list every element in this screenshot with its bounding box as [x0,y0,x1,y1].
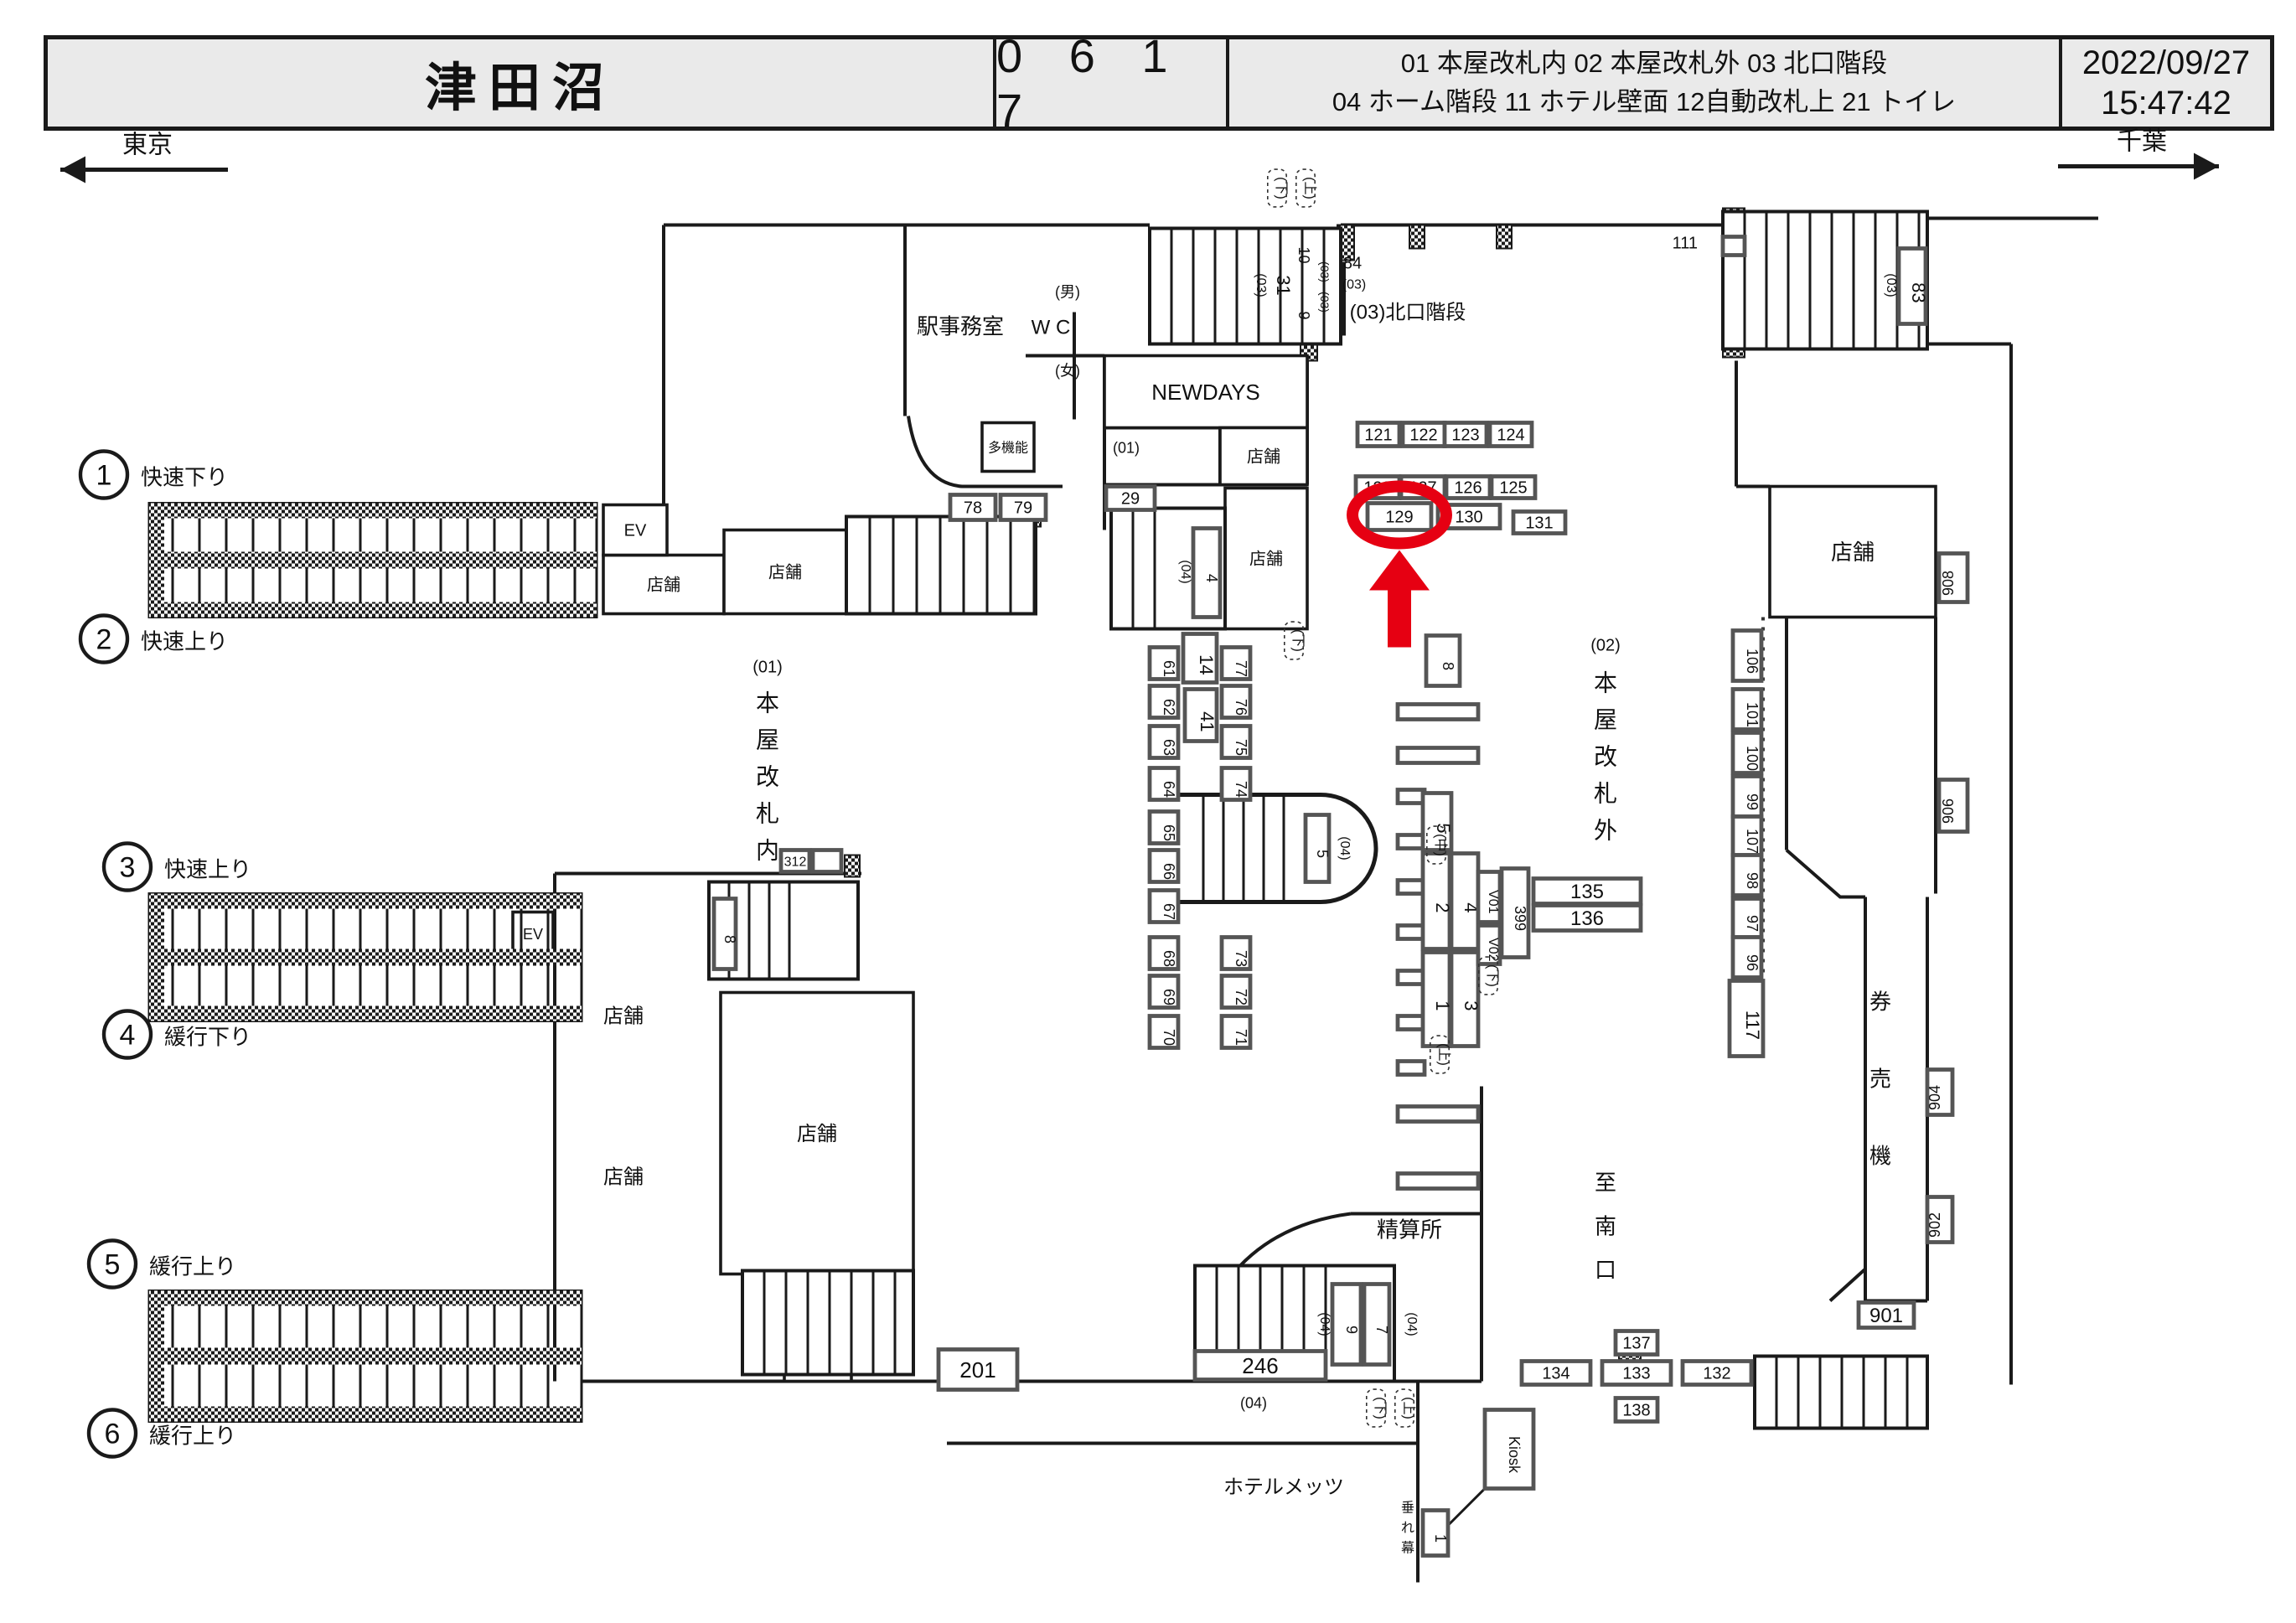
shop-center: 店舗 [721,993,913,1274]
shop-by-stairs04: 店舗 [1225,488,1307,629]
ad-box-126: 126 [1446,477,1490,499]
text-券売機: 券売機 [1869,990,1891,1169]
ad-box-5: 5 [1306,815,1331,882]
ad-box-label-66: 66 [1161,863,1177,880]
text-(04): (04) [1178,560,1192,583]
ad-box-201: 201 [939,1350,1017,1390]
wall-path [1787,850,1865,897]
ad-box-399: 399 [1502,869,1528,958]
ad-box-71: 71 [1222,1016,1250,1048]
ad-box-121: 121 [1357,423,1399,447]
text-(03): (03) [1318,261,1332,282]
platform-name-6: 緩行上り [149,1424,236,1449]
text-(03): (03) [1884,273,1898,297]
multifunction-toilet-label: 多機能 [988,440,1028,455]
ad-box-98: 98 [1733,855,1761,896]
ad-box-label-246: 246 [1242,1353,1278,1378]
ad-box-label-132: 132 [1703,1365,1730,1383]
ad-box-label-130: 130 [1455,509,1482,527]
ad-box-label-74: 74 [1233,781,1249,798]
text-駅事務室: 駅事務室 [917,314,1004,339]
ad-box-label-62: 62 [1161,699,1177,716]
ad-box-label-106: 106 [1744,649,1761,674]
ad-box-label-1: 1 [1432,1534,1449,1543]
platform-number-4: 4 [120,1020,136,1052]
text-W C: W C [1032,317,1071,339]
platform-number-1: 1 [96,460,112,492]
text-9: 9 [1295,311,1312,319]
ad-box-label-3: 3 [1461,1000,1482,1010]
elevator-1: EV [603,505,667,556]
staircase [1203,795,1284,902]
ad-box-65: 65 [1150,812,1178,844]
ad-box-label-78: 78 [964,499,982,518]
ad-box-label-73: 73 [1233,950,1249,967]
ad-box-123: 123 [1445,423,1487,447]
text-(男): (男) [1055,284,1080,301]
ad-box-label-68: 68 [1161,950,1177,967]
text-(04): (04) [1337,836,1352,860]
ad-box-V01: V01 [1478,872,1500,923]
ad-box-label-98: 98 [1744,872,1761,889]
hatched-pillar [1409,225,1425,249]
ad-box-label-9: 9 [1343,1326,1360,1334]
highlight-arrow-129 [1369,550,1430,648]
shop-under-newdays-label: 店舗 [1247,447,1280,467]
ad-box-label-65: 65 [1161,824,1177,841]
elevator-1-label: EV [624,522,647,540]
ad-box-64: 64 [1150,768,1178,800]
text-(04): (04) [1240,1395,1267,1412]
text-10: 10 [1295,246,1312,263]
text-(03)北口階段: (03)北口階段 [1350,302,1466,324]
platform-3: 3快速上り [104,844,251,891]
ad-box-label-64: 64 [1161,781,1177,798]
ad-box-label-125: 125 [1499,479,1527,498]
ad-box-4: 4 [1193,529,1220,618]
ad-box-label-129: 129 [1385,509,1413,527]
ad-box-3: 3 [1451,953,1482,1047]
elevator-2-label: EV [523,926,543,943]
ad-box-908: 908 [1939,554,1968,602]
ad-box-72: 72 [1222,976,1250,1008]
ad-box-label-99: 99 [1744,793,1761,810]
ad-box-label-107: 107 [1744,829,1761,854]
text-(02): (02) [1590,637,1621,655]
ad-box-8: 8 [714,899,738,969]
ad-box-label-121: 121 [1364,426,1392,445]
ad-box-99: 99 [1733,777,1761,817]
text-垂れ幕: 垂れ幕 [1401,1501,1414,1556]
ad-box-label-71: 71 [1233,1029,1249,1046]
ad-box-132: 132 [1683,1362,1751,1385]
shop-west-a-label: 店舗 [647,576,680,595]
ad-box-label-75: 75 [1233,739,1249,756]
ad-box-label-41: 41 [1197,711,1218,731]
platform-name-3: 快速上り [164,857,251,882]
multifunction-toilet: 多機能 [982,423,1034,472]
text-至南口: 至南口 [1595,1171,1616,1283]
ad-box-label-117: 117 [1742,1010,1763,1040]
shop-under-newdays: 店舗 [1220,428,1307,485]
shop-center-label: 店舗 [797,1123,837,1145]
ad-box-label-126: 126 [1454,479,1482,498]
staircase [1755,1357,1927,1429]
ad-box-label-131: 131 [1525,514,1553,533]
ad-box-902: 902 [1926,1197,1952,1243]
ad-box-label-122: 122 [1409,426,1437,445]
ad-box-2: 2 [1423,854,1453,949]
text-本屋改札内: 本屋改札内 [756,690,779,864]
text-84: 84 [1343,255,1362,273]
ad-box-29: 29 [1106,487,1155,510]
direction-東京: 東京 [60,132,228,183]
ad-box-label-67: 67 [1161,903,1177,920]
ad-box-label-76: 76 [1233,699,1249,716]
ad-box-96: 96 [1733,938,1761,978]
ad-box-135: 135 [1533,879,1641,904]
newdays-store: NEWDAYS [1104,356,1307,428]
ad-box-label-8: 8 [1440,662,1456,670]
ad-box-label-100: 100 [1744,746,1761,771]
ad-box-131: 131 [1513,512,1565,534]
ad-box-74: 74 [1222,768,1250,800]
station-floorplan-page: { "header": { "station_name": "津田沼", "ma… [0,0,2296,1623]
shop-north-east-label: 店舗 [1831,540,1875,565]
staircase [846,517,1036,614]
ad-box-901: 901 [1859,1303,1914,1328]
ad-box-76: 76 [1222,686,1250,718]
ad-box-label-137: 137 [1622,1335,1650,1353]
platform-name-4: 緩行下り [164,1025,251,1050]
ad-box-label-97: 97 [1744,915,1761,932]
text-(01): (01) [752,659,783,677]
ad-box-106: 106 [1733,631,1761,681]
ad-box-label-61: 61 [1161,660,1177,677]
ad-box-blank [1723,237,1745,256]
ad-box-7: 7 [1364,1284,1390,1365]
platform-number-6: 6 [105,1419,121,1450]
shop-by-stairs04-label: 店舗 [1249,550,1283,569]
text-(01): (01) [1113,440,1140,457]
ad-box-blank [1398,881,1425,894]
ad-box-66: 66 [1150,850,1178,882]
ad-box-137: 137 [1616,1331,1657,1355]
ad-box-61: 61 [1150,648,1178,680]
newdays-store-label: NEWDAYS [1151,380,1260,405]
platform-number-2: 2 [96,624,112,656]
ad-box-label-70: 70 [1161,1029,1177,1046]
ad-box-label-133: 133 [1622,1365,1650,1383]
ad-box-label-77: 77 [1233,660,1249,677]
ad-box-906: 906 [1939,780,1968,832]
text-店舗: 店舗 [603,1166,644,1189]
ad-box-14: 14 [1183,634,1217,683]
ad-box-70: 70 [1150,1016,1178,1048]
text-ホテルメッツ: ホテルメッツ [1223,1476,1344,1499]
ad-box-blank [1398,1174,1478,1189]
ad-box-label-134: 134 [1542,1365,1569,1383]
ad-box-83: 83 [1899,249,1929,324]
platform-1: 1快速下り [80,452,228,499]
ad-box-label-V02: V02 [1486,938,1500,962]
direction-label-千葉: 千葉 [2117,128,2167,156]
ad-box-label-96: 96 [1744,954,1761,971]
ad-box-label-138: 138 [1622,1402,1650,1420]
ad-box-100: 100 [1733,733,1761,773]
ad-box-62: 62 [1150,686,1178,718]
ad-box-8: 8 [1426,636,1460,686]
ad-box-1: 1 [1423,1511,1449,1556]
text-本屋改札外: 本屋改札外 [1594,670,1617,844]
ad-box-label-8: 8 [721,935,738,943]
text-(03): (03) [1342,278,1366,292]
ad-box-label-901: 901 [1869,1305,1903,1327]
platform-escalator [149,1291,582,1422]
ad-box-label-399: 399 [1512,906,1528,931]
ad-box-blank [1398,705,1478,720]
ad-box-134: 134 [1522,1362,1590,1385]
ad-box-label-123: 123 [1451,426,1479,445]
ad-box-124: 124 [1490,423,1532,447]
ad-box-1: 1 [1423,953,1453,1047]
hatched-pillar [845,855,860,877]
text-(04): (04) [1317,1312,1332,1336]
ad-box-138: 138 [1616,1398,1657,1422]
ad-box-label-14: 14 [1196,654,1217,675]
direction-千葉: 千葉 [2058,128,2219,180]
ad-box-blank [813,850,841,872]
floorplan-svg: NEWDAYS店舗店舗店舗店舗店舗店舗EVEVEV多機能 78792931220… [0,0,2296,1623]
ad-box-41: 41 [1185,690,1218,742]
shop-west-a: 店舗 [603,556,724,614]
ad-box-136: 136 [1533,906,1641,931]
staircase [742,1271,913,1375]
text-(04): (04) [1404,1312,1419,1336]
ad-box-blank [1398,1062,1425,1075]
stairs-layer [149,212,1927,1429]
ad-box-label-904: 904 [1926,1085,1943,1110]
text-(03): (03) [1318,292,1332,313]
ad-box-label-201: 201 [959,1357,995,1383]
ad-box-label-69: 69 [1161,989,1177,1005]
text-(女): (女) [1055,363,1080,380]
ad-box-label-312: 312 [784,855,807,869]
ad-box-78: 78 [950,495,995,520]
text-精算所: 精算所 [1377,1217,1442,1243]
ad-box-312: 312 [781,850,809,872]
hatched-pillar [1497,225,1512,249]
ad-box-label-5: 5 [1433,823,1454,833]
ad-box-blank [1398,1016,1425,1030]
ad-box-blank [1398,790,1425,804]
ad-box-246: 246 [1195,1352,1326,1380]
ad-box-label-79: 79 [1014,499,1032,518]
ad-box-label-136: 136 [1570,907,1604,930]
ad-box-label-4: 4 [1203,574,1220,582]
ad-box-label-83: 83 [1908,282,1929,302]
ad-box-129-highlighted: 129 [1368,504,1431,530]
ad-box-122: 122 [1403,423,1445,447]
direction-label-東京: 東京 [122,132,173,159]
text-111: 111 [1673,235,1698,253]
ad-box-63: 63 [1150,726,1178,758]
ad-box-label-101: 101 [1744,702,1761,727]
ad-box-79: 79 [1001,495,1046,520]
platform-escalator [149,504,597,618]
ad-box-68: 68 [1150,938,1178,969]
ad-box-label-7: 7 [1373,1326,1390,1334]
ad-box-117: 117 [1730,981,1763,1057]
ad-box-blank [1398,971,1425,985]
ad-box-67: 67 [1150,891,1178,923]
platform-name-2: 快速上り [141,629,228,654]
text-店舗: 店舗 [603,1005,644,1028]
platform-5: 5緩行上り [89,1241,236,1288]
shop-north-east: 店舗 [1770,487,1936,618]
text-31: 31 [1273,275,1294,295]
ad-box-9: 9 [1332,1284,1361,1365]
ad-box-label-29: 29 [1121,490,1140,509]
ad-box-101: 101 [1733,690,1761,730]
shop-west-b: 店舗 [724,530,846,614]
platform-number-5: 5 [105,1249,121,1281]
ad-box-blank [1398,748,1478,763]
ad-box-label-V01: V01 [1486,890,1500,914]
ad-box-label-124: 124 [1497,426,1524,445]
ad-box-label-Kiosk: Kiosk [1506,1436,1523,1474]
ad-box-label-63: 63 [1161,739,1177,756]
platform-name-1: 快速下り [141,465,228,490]
shop-west-b-label: 店舗 [768,563,802,582]
ad-box-label-72: 72 [1233,989,1249,1005]
ad-box-blank [1398,835,1425,849]
ad-box-904: 904 [1926,1070,1952,1115]
staircase [1150,229,1341,344]
wall-path [1830,1269,1865,1301]
ad-box-75: 75 [1222,726,1250,758]
platform-name-5: 緩行上り [149,1254,236,1279]
ad-box-label-906: 906 [1940,799,1957,824]
ad-box-label-902: 902 [1926,1212,1943,1238]
platform-2: 2快速上り [80,616,228,663]
ad-box-label-5: 5 [1314,850,1331,858]
ad-box-label-908: 908 [1940,571,1957,596]
text-(03): (03) [1254,273,1268,297]
ad-box-97: 97 [1733,899,1761,938]
platform-number-3: 3 [120,852,136,884]
ad-box-label-135: 135 [1570,881,1604,903]
ad-box-Kiosk: Kiosk [1485,1410,1533,1489]
ad-box-blank [1398,1107,1478,1122]
ad-box-73: 73 [1222,938,1250,969]
ad-box-125: 125 [1492,477,1535,499]
ad-box-77: 77 [1222,648,1250,680]
ad-box-blank [1398,926,1425,939]
ad-box-107: 107 [1733,817,1761,855]
ad-box-133: 133 [1602,1362,1671,1385]
ad-box-69: 69 [1150,976,1178,1008]
